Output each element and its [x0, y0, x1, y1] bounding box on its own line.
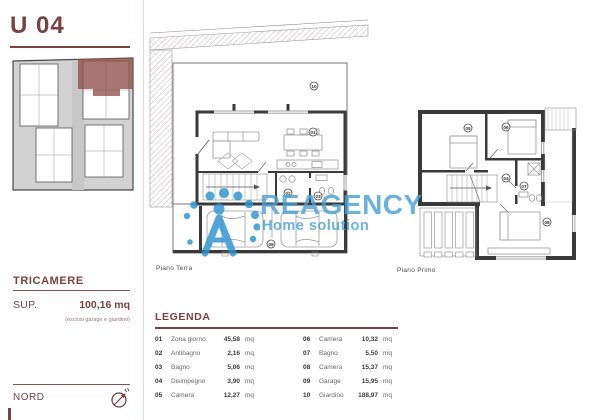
room-tag-camera: 08 [543, 218, 551, 226]
legend-row: 01 Zona giorno 45,58 mq [155, 336, 259, 350]
window [496, 256, 546, 261]
legend-title: LEGENDA [155, 311, 211, 323]
legend-item-unit: mq [240, 364, 259, 371]
window [540, 142, 546, 154]
legend-item-value: 5,06 [210, 364, 240, 371]
legend-item-label: Antibagno [171, 350, 210, 357]
svg-text:04: 04 [503, 176, 509, 182]
legend-row: 03 Bagno 5,06 mq [155, 364, 259, 378]
legend-column-left: 01 Zona giorno 45,58 mq 02 Antibagno 2,1… [155, 336, 259, 406]
svg-text:02: 02 [285, 191, 291, 197]
compass-icon [108, 385, 132, 411]
room-tag-camera: 06 [502, 123, 510, 131]
legend-item-unit: mq [240, 350, 259, 357]
legend-item-unit: mq [378, 392, 397, 399]
legend-item-unit: mq [240, 378, 259, 385]
legend-item-label: Camera [319, 364, 348, 371]
legend-item-number: 05 [155, 392, 171, 399]
legend-item-number: 06 [303, 336, 319, 343]
pergola-slats [420, 208, 476, 257]
legend-item-label: Zona giorno [171, 336, 210, 343]
room-tag-garage: 09 [267, 240, 275, 248]
legend-item-value: 5,50 [348, 350, 378, 357]
legend-item-unit: mq [378, 378, 397, 385]
legend-item-value: 188,97 [348, 392, 378, 399]
svg-text:03: 03 [315, 194, 321, 200]
legend-item-number: 10 [303, 392, 319, 399]
svg-text:07: 07 [521, 184, 527, 190]
svg-text:05: 05 [465, 126, 471, 132]
window [540, 170, 546, 182]
svg-text:09: 09 [268, 242, 274, 248]
kitchen-counter [277, 160, 338, 169]
site-key-plan [10, 56, 138, 200]
legend-row: 06 Camera 10,32 mq [303, 336, 397, 350]
svg-text:01: 01 [310, 130, 316, 136]
svg-text:06: 06 [503, 125, 509, 131]
room-tag-zona-giorno: 01 [309, 128, 317, 136]
legend-item-unit: mq [378, 350, 397, 357]
legend-row: 07 Bagno 5,50 mq [303, 350, 397, 364]
window [571, 215, 577, 232]
legend-item-unit: mq [240, 336, 259, 343]
legend-item-unit: mq [378, 364, 397, 371]
room-tag-giardino: 10 [310, 82, 318, 90]
surface-value: 100,16 mq [79, 299, 130, 311]
legend-item-value: 15,37 [348, 364, 378, 371]
legend-item-value: 3,90 [210, 378, 240, 385]
legend-item-unit: mq [240, 392, 259, 399]
legend-item-number: 01 [155, 336, 171, 343]
title-underline [10, 46, 130, 48]
bed [488, 212, 550, 254]
piano-terra-plan: 10 01 02 03 09 [148, 2, 398, 274]
legend-item-value: 45,58 [210, 336, 240, 343]
room-tag-antibagno: 02 [284, 189, 292, 197]
legend-item-number: 04 [155, 378, 171, 385]
boundary-hatch-strip [150, 50, 172, 207]
surface-note: (esclusi garage e giardino) [13, 317, 130, 323]
type-underline [13, 290, 130, 291]
surface-row: SUP. 100,16 mq [13, 299, 130, 311]
apartment-type-label: TRICAMERE [13, 275, 84, 287]
stairs [447, 175, 497, 202]
legend-item-label: Garage [319, 378, 348, 385]
legend-item-value: 2,16 [210, 350, 240, 357]
boundary-hatch-band [150, 25, 368, 50]
legend-item-label: Camera [171, 392, 210, 399]
legend-item-label: Bagno [171, 364, 210, 371]
legend-item-label: Disimpegno [171, 378, 210, 385]
legend-item-number: 03 [155, 364, 171, 371]
window [343, 175, 348, 191]
page-corner-mark [8, 408, 11, 420]
sidebar-separator [143, 0, 144, 420]
legend-item-label: Bagno [319, 350, 348, 357]
piano-terra-caption: Piano Terra [156, 265, 192, 272]
terrace-pergola [545, 108, 576, 202]
legend-row: 02 Antibagno 2,16 mq [155, 350, 259, 364]
svg-text:08: 08 [544, 220, 550, 226]
legend-column-right: 06 Camera 10,32 mq 07 Bagno 5,50 mq 08 C… [303, 336, 397, 406]
legend-item-label: Giardino [319, 392, 348, 399]
legend-divider [155, 327, 398, 329]
bed [508, 120, 536, 154]
surface-label: SUP. [13, 299, 37, 311]
room-tag-bagno: 07 [520, 182, 528, 190]
legend-item-unit: mq [378, 336, 397, 343]
legend-item-number: 07 [303, 350, 319, 357]
room-tag-camera: 05 [464, 124, 472, 132]
legend-item-value: 15,95 [348, 378, 378, 385]
room-tag-bagno: 03 [314, 192, 322, 200]
garage-area [173, 204, 347, 256]
legend-row: 05 Camera 12,27 mq [155, 392, 259, 406]
legend-row: 09 Garage 15,95 mq [303, 378, 397, 392]
unit-title: U 04 [10, 12, 65, 40]
legend-item-number: 09 [303, 378, 319, 385]
north-label: NORD [13, 392, 44, 403]
legend-item-number: 08 [303, 364, 319, 371]
legend-item-label: Camera [319, 336, 348, 343]
legend-item-value: 12,27 [210, 392, 240, 399]
legend-row: 10 Giardino 188,97 mq [303, 392, 397, 406]
legend-row: 04 Disimpegno 3,90 mq [155, 378, 259, 392]
legend-item-number: 02 [155, 350, 171, 357]
legend-row: 08 Camera 15,37 mq [303, 364, 397, 378]
piano-primo-caption: Piano Primo [397, 267, 436, 274]
svg-text:10: 10 [311, 84, 317, 90]
room-tag-disimpegno: 04 [502, 174, 510, 182]
legend-item-value: 10,32 [348, 336, 378, 343]
piano-primo-plan: 05 06 04 07 08 [393, 98, 600, 275]
